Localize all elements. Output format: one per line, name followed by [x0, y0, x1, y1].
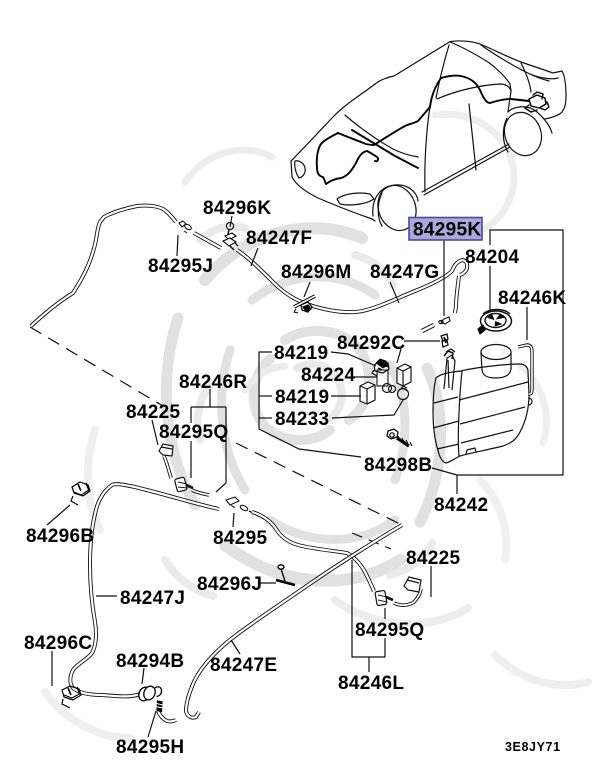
svg-text:84295K: 84295K	[413, 220, 481, 241]
svg-text:84225: 84225	[406, 548, 460, 569]
svg-text:84292C: 84292C	[337, 333, 405, 354]
svg-text:3E8JY71: 3E8JY71	[505, 740, 561, 754]
svg-text:84296M: 84296M	[281, 262, 351, 283]
svg-text:84296K: 84296K	[203, 198, 271, 219]
svg-text:84247F: 84247F	[246, 228, 312, 249]
svg-text:84246K: 84246K	[498, 288, 566, 309]
svg-text:84225: 84225	[126, 402, 180, 423]
svg-text:84219: 84219	[274, 343, 328, 364]
svg-text:84298B: 84298B	[364, 455, 432, 476]
svg-text:84247G: 84247G	[370, 262, 439, 283]
svg-text:84294B: 84294B	[116, 651, 184, 672]
svg-text:84246L: 84246L	[338, 673, 404, 694]
svg-text:84247E: 84247E	[210, 655, 277, 676]
svg-text:84296B: 84296B	[26, 526, 94, 547]
svg-text:84224: 84224	[301, 365, 355, 386]
svg-text:84295Q: 84295Q	[355, 620, 424, 641]
svg-text:84204: 84204	[465, 247, 519, 268]
svg-text:84246R: 84246R	[179, 372, 247, 393]
svg-text:84233: 84233	[275, 409, 329, 430]
svg-text:84296C: 84296C	[24, 633, 92, 654]
svg-text:84296J: 84296J	[197, 574, 262, 595]
svg-text:84242: 84242	[434, 495, 488, 516]
svg-text:84295J: 84295J	[148, 256, 213, 277]
svg-text:84295H: 84295H	[116, 737, 184, 758]
svg-text:84295: 84295	[213, 528, 267, 549]
svg-text:84295Q: 84295Q	[159, 422, 228, 443]
svg-text:84219: 84219	[275, 387, 329, 408]
svg-text:84247J: 84247J	[120, 588, 185, 609]
